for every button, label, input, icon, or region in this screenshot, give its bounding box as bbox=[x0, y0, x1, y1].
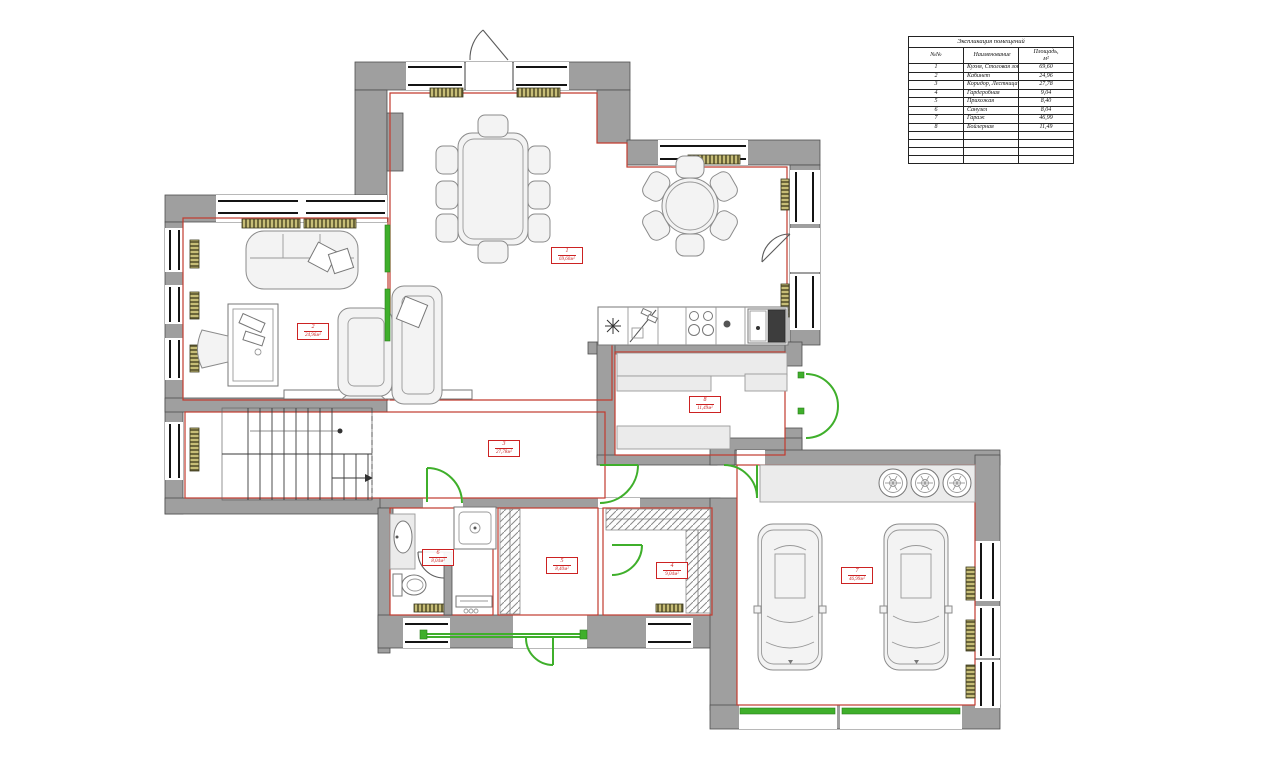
table-row: 7 Гараж 46,99 bbox=[909, 115, 1074, 124]
shower bbox=[454, 507, 496, 549]
room-label-kitchen-living: 1 69,60м² bbox=[551, 247, 583, 264]
room-label-bathroom: 6 8,04м² bbox=[422, 549, 454, 566]
table-row-empty bbox=[909, 156, 1074, 164]
room-area: 11,49м² bbox=[697, 405, 713, 412]
row-area: 69,60 bbox=[1019, 64, 1074, 73]
table-row: 3 Коридор, Лестница 27,78 bbox=[909, 81, 1074, 90]
row-number: 6 bbox=[909, 106, 964, 115]
room-label-corridor: 3 27,78м² bbox=[488, 440, 520, 457]
table-row: 5 Прихожая 8,40 bbox=[909, 98, 1074, 107]
office-loveseat bbox=[338, 308, 392, 396]
row-area: 24,96 bbox=[1019, 72, 1074, 81]
north-door bbox=[470, 30, 508, 60]
window-frames bbox=[170, 67, 993, 706]
room-number: 2 bbox=[304, 324, 323, 332]
row-number: 7 bbox=[909, 115, 964, 124]
room-area: 8,04м² bbox=[431, 558, 444, 565]
row-area: 9,04 bbox=[1019, 89, 1074, 98]
tire bbox=[879, 469, 907, 497]
office-glass-panel bbox=[385, 225, 390, 272]
sink-drain bbox=[724, 321, 731, 328]
area-header-text: Площадь, bbox=[1034, 49, 1059, 55]
row-number: 2 bbox=[909, 72, 964, 81]
row-number: 5 bbox=[909, 98, 964, 107]
office-desk bbox=[228, 304, 278, 386]
tire bbox=[911, 469, 939, 497]
room-label-boiler: 8 11,49м² bbox=[689, 396, 721, 413]
row-area: 11,49 bbox=[1019, 123, 1074, 132]
table-row: 4 Гардеробная 9,04 bbox=[909, 89, 1074, 98]
room-label-hallway: 5 8,40м² bbox=[546, 557, 578, 574]
table-row: 8 Бойлерная 11,49 bbox=[909, 123, 1074, 132]
row-area: 27,78 bbox=[1019, 81, 1074, 90]
fridge bbox=[748, 309, 786, 343]
office-glass-panel bbox=[385, 289, 390, 341]
bath-shelf bbox=[456, 596, 492, 613]
table-row-empty bbox=[909, 148, 1074, 156]
row-area: 8,04 bbox=[1019, 106, 1074, 115]
table-row: 2 Кабинет 24,96 bbox=[909, 72, 1074, 81]
hallway-door bbox=[600, 465, 638, 503]
row-name: Санузел bbox=[964, 106, 1019, 115]
room-explication-table: Экспликация помещений №№ Наименование Пл… bbox=[908, 36, 1074, 164]
floor-plan-drawing bbox=[0, 0, 1280, 759]
floor-plan-sheet: 1 69,60м² 2 24,96м² 3 27,78м² 4 9,04м² 5… bbox=[0, 0, 1280, 759]
row-area: 8,40 bbox=[1019, 98, 1074, 107]
table-row-empty bbox=[909, 140, 1074, 148]
boiler-exit-doors bbox=[806, 374, 838, 438]
area-header-unit: м² bbox=[1043, 56, 1049, 62]
room-label-garage: 7 46,99м² bbox=[841, 567, 873, 584]
staircase bbox=[222, 408, 373, 500]
kitchen-counter bbox=[598, 307, 788, 345]
kitchen-east-door bbox=[762, 234, 790, 262]
garage-side-door bbox=[724, 465, 757, 498]
col-header-number: №№ bbox=[909, 48, 964, 64]
room-area: 24,96м² bbox=[305, 332, 321, 339]
row-area: 46,99 bbox=[1019, 115, 1074, 124]
table-title: Экспликация помещений bbox=[909, 37, 1074, 48]
row-name: Кухня, Столовая зона, Гостиная bbox=[964, 64, 1019, 73]
sink-symbol bbox=[605, 318, 621, 334]
room-number: 3 bbox=[495, 441, 514, 449]
tire bbox=[943, 469, 971, 497]
room-label-office: 2 24,96м² bbox=[297, 323, 329, 340]
row-number: 4 bbox=[909, 89, 964, 98]
col-header-name: Наименование bbox=[964, 48, 1019, 64]
row-number: 8 bbox=[909, 123, 964, 132]
round-table-set bbox=[640, 156, 741, 256]
office-sofa bbox=[246, 231, 358, 289]
col-header-area: Площадь, м² bbox=[1019, 48, 1074, 64]
row-name: Бойлерная bbox=[964, 123, 1019, 132]
garage-gate-left bbox=[740, 708, 835, 714]
table-row: 6 Санузел 8,04 bbox=[909, 106, 1074, 115]
dining-table-set bbox=[436, 115, 550, 263]
car-left bbox=[754, 524, 826, 670]
garage-gate-right bbox=[842, 708, 960, 714]
table-row-empty bbox=[909, 132, 1074, 140]
toilet bbox=[393, 574, 426, 596]
row-name: Гараж bbox=[964, 115, 1019, 124]
row-name: Кабинет bbox=[964, 72, 1019, 81]
room-label-wardrobe: 4 9,04м² bbox=[656, 562, 688, 579]
room-number: 4 bbox=[663, 563, 682, 571]
row-number: 1 bbox=[909, 64, 964, 73]
table-row: 1 Кухня, Столовая зона, Гостиная 69,60 bbox=[909, 64, 1074, 73]
room-area: 69,60м² bbox=[559, 256, 575, 263]
row-name: Коридор, Лестница bbox=[964, 81, 1019, 90]
room-area: 9,04м² bbox=[665, 571, 678, 578]
office-chair bbox=[198, 330, 229, 368]
room-number: 5 bbox=[553, 558, 572, 566]
room-number: 8 bbox=[696, 397, 715, 405]
row-name: Прихожая bbox=[964, 98, 1019, 107]
room-number: 7 bbox=[848, 568, 867, 576]
room-number: 1 bbox=[558, 248, 577, 256]
car-right bbox=[880, 524, 952, 670]
room-number: 6 bbox=[429, 550, 448, 558]
wardrobe-door bbox=[612, 545, 642, 575]
row-number: 3 bbox=[909, 81, 964, 90]
living-sofa bbox=[392, 286, 442, 404]
room-area: 46,99м² bbox=[849, 576, 865, 583]
room-area: 8,40м² bbox=[555, 566, 568, 573]
room-area: 27,78м² bbox=[496, 449, 512, 456]
row-name: Гардеробная bbox=[964, 89, 1019, 98]
